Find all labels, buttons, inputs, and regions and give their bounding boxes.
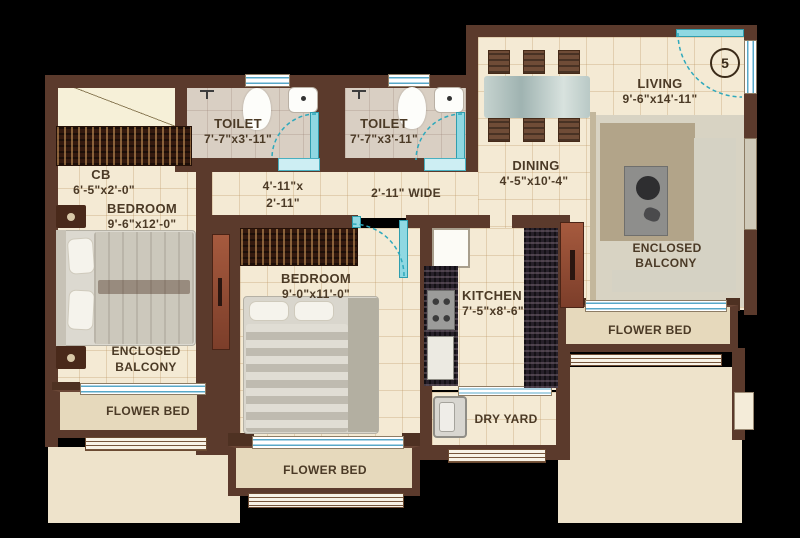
balcony-left-label-line1: ENCLOSED: [111, 344, 180, 358]
cb-dims: 6'-5"x2'-0": [73, 183, 135, 197]
flower-bed-left-label: FLOWER BED: [106, 404, 190, 418]
bedroom2-label: BEDROOM: [281, 271, 351, 286]
toilet2-dims: 7'-7"x3'-11": [350, 132, 418, 146]
toilet1-label: TOILET: [214, 116, 262, 131]
living-dims: 9'-6"x14'-11": [622, 92, 697, 106]
cb-label: CB: [91, 167, 110, 182]
dry-yard-label: DRY YARD: [474, 412, 537, 426]
toilet1-dims: 7'-7"x3'-11": [204, 132, 272, 146]
bedroom1-label: BEDROOM: [107, 201, 177, 216]
dining-label: DINING: [512, 158, 559, 173]
dining-dims: 4'-5"x10'-4": [500, 174, 569, 188]
bedroom2-dims: 9'-0"x11'-0": [282, 287, 350, 301]
living-label: LIVING: [637, 76, 682, 91]
floor-plan-canvas: 5 TOILET 7'-7"x3'-11" TOILET 7'-7"x3'-11…: [0, 0, 800, 538]
corridor-width-label: 2'-11" WIDE: [371, 186, 441, 200]
balcony-right-label-line1: ENCLOSED: [632, 241, 701, 255]
lobby-dims-line2: 2'-11": [266, 196, 300, 210]
flower-bed-bottom-label: FLOWER BED: [283, 463, 367, 477]
unit-number: 5: [721, 55, 729, 71]
balcony-left-label-line2: BALCONY: [115, 360, 176, 374]
balcony-right-label-line2: BALCONY: [635, 256, 696, 270]
flower-bed-right-label: FLOWER BED: [608, 323, 692, 337]
kitchen-label: KITCHEN: [462, 288, 522, 303]
lobby-dims-line1: 4'-11"x: [263, 179, 304, 193]
toilet2-label: TOILET: [360, 116, 408, 131]
kitchen-dims: 7'-5"x8'-6": [462, 304, 524, 318]
unit-number-badge: 5: [710, 48, 740, 78]
bedroom1-dims: 9'-6"x12'-0": [108, 217, 177, 231]
